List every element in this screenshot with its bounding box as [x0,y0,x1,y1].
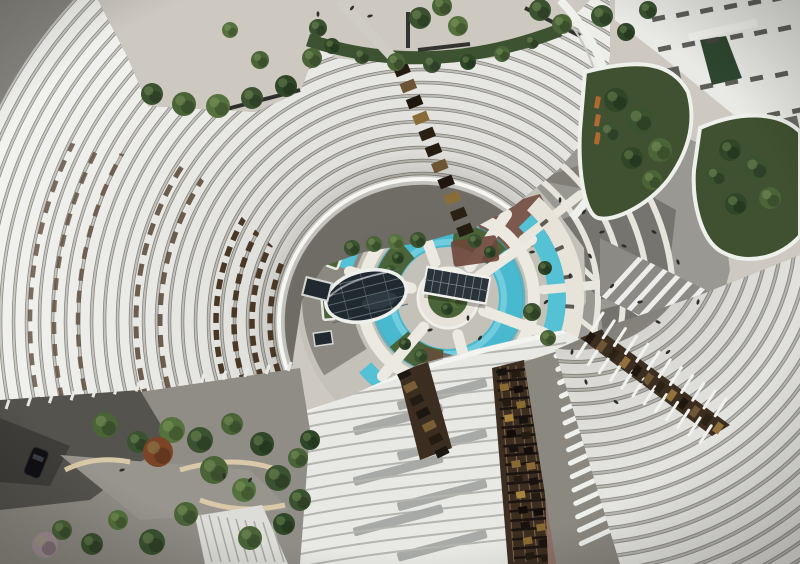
vignette [0,0,800,564]
architectural-render [0,0,800,564]
aerial-render-viewport [0,0,800,564]
